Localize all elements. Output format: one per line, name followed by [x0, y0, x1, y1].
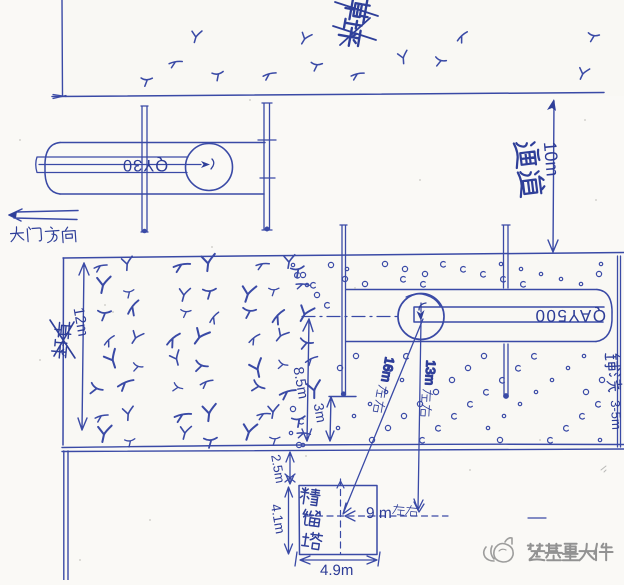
- svg-text:4.9m: 4.9m: [320, 562, 353, 579]
- svg-text:13m: 13m: [422, 360, 438, 386]
- svg-text:3-5m: 3-5m: [608, 400, 624, 430]
- svg-text:QAY500: QAY500: [534, 306, 606, 325]
- svg-text:10m: 10m: [540, 141, 563, 178]
- svg-text:9 m: 9 m: [366, 505, 392, 522]
- svg-text:QY30: QY30: [122, 156, 168, 174]
- svg-text:3m: 3m: [311, 402, 330, 424]
